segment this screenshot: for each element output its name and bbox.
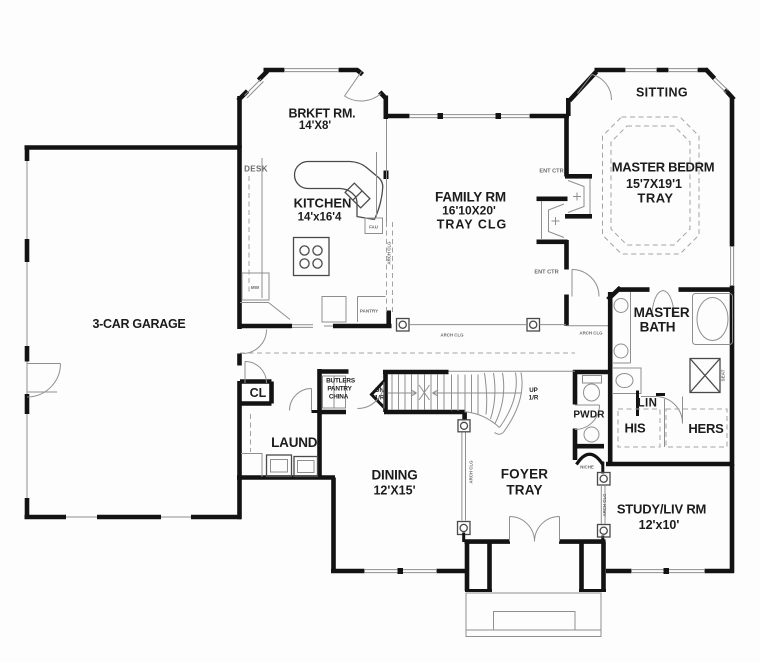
- svg-text:PANTRY: PANTRY: [327, 386, 352, 393]
- svg-text:CHINA: CHINA: [329, 394, 349, 401]
- svg-text:14'x16'4: 14'x16'4: [298, 212, 342, 224]
- svg-text:FAMILY RM: FAMILY RM: [435, 190, 506, 205]
- svg-text:LAUND.: LAUND.: [271, 435, 321, 450]
- svg-text:MASTER BEDRM: MASTER BEDRM: [612, 160, 715, 175]
- svg-text:STUDY/LIV RM: STUDY/LIV RM: [617, 502, 706, 517]
- svg-text:MASTER: MASTER: [634, 305, 690, 320]
- svg-text:ARCH CLG: ARCH CLG: [469, 460, 474, 484]
- svg-text:BRKFT RM.: BRKFT RM.: [289, 107, 356, 121]
- svg-text:TRAY: TRAY: [637, 191, 673, 206]
- svg-text:HERS: HERS: [688, 421, 724, 436]
- svg-text:ENT CTR: ENT CTR: [539, 169, 563, 175]
- svg-text:FOYER: FOYER: [501, 467, 549, 482]
- svg-text:12'X15': 12'X15': [373, 484, 415, 498]
- svg-text:HIS: HIS: [624, 421, 646, 436]
- svg-text:ARCH CLG: ARCH CLG: [387, 241, 392, 265]
- svg-text:PWDR: PWDR: [573, 410, 605, 421]
- svg-text:FAU: FAU: [369, 225, 378, 230]
- svg-text:SITTING: SITTING: [636, 86, 688, 100]
- svg-text:TRAY: TRAY: [506, 483, 542, 498]
- svg-text:TRAY CLG: TRAY CLG: [437, 218, 508, 232]
- svg-text:LIN: LIN: [638, 398, 658, 410]
- svg-text:1/R: 1/R: [529, 395, 539, 402]
- svg-text:UP: UP: [529, 387, 538, 394]
- svg-text:KITCHEN: KITCHEN: [294, 196, 352, 211]
- svg-text:PANTRY: PANTRY: [360, 309, 378, 314]
- svg-text:MW: MW: [251, 285, 260, 290]
- svg-text:BATH: BATH: [640, 320, 676, 335]
- svg-text:14'X8': 14'X8': [299, 120, 332, 132]
- svg-text:ENT CTR: ENT CTR: [534, 270, 558, 276]
- svg-text:DESK: DESK: [244, 165, 268, 174]
- svg-text:16'10X20': 16'10X20': [442, 204, 496, 218]
- svg-text:DINING: DINING: [371, 468, 417, 483]
- svg-text:BUTLERS: BUTLERS: [326, 378, 356, 385]
- svg-text:12'x10': 12'x10': [639, 518, 680, 532]
- svg-text:ARCH CLG: ARCH CLG: [440, 333, 464, 338]
- svg-text:SEAT: SEAT: [721, 369, 726, 381]
- svg-text:NICHE: NICHE: [580, 465, 594, 470]
- svg-text:3-CAR GARAGE: 3-CAR GARAGE: [93, 317, 186, 331]
- svg-text:ARCH CLG: ARCH CLG: [579, 331, 603, 336]
- svg-text:CL: CL: [250, 386, 267, 400]
- svg-text:15'7X19'1: 15'7X19'1: [626, 177, 682, 191]
- svg-text:ARCH CLG: ARCH CLG: [602, 493, 607, 517]
